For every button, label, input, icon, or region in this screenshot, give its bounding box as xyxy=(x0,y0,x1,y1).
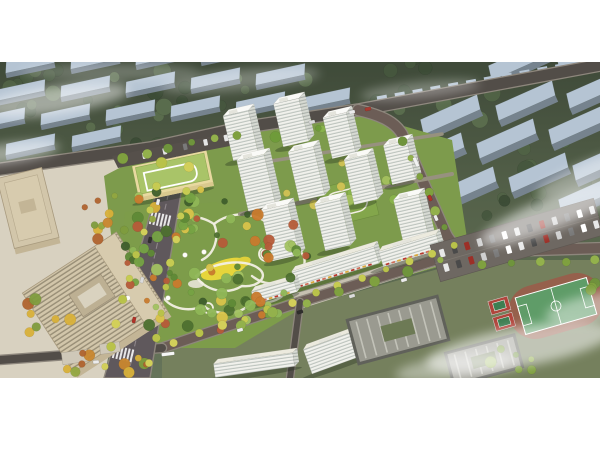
street-tree xyxy=(383,266,389,272)
street-tree xyxy=(267,307,278,318)
site-tree xyxy=(121,242,130,251)
street-tree xyxy=(146,206,153,213)
site-tree xyxy=(265,243,273,251)
site-tree xyxy=(82,204,88,210)
site-tree xyxy=(337,182,345,190)
street-tree xyxy=(288,299,296,307)
street-tree xyxy=(188,139,195,146)
street-tree xyxy=(111,319,120,328)
site-tree xyxy=(233,274,244,285)
site-tree xyxy=(293,249,301,257)
street-tree xyxy=(562,258,570,266)
street-tree xyxy=(117,153,128,164)
site-tree xyxy=(103,218,113,228)
site-tree xyxy=(163,278,170,285)
street-tree xyxy=(126,275,133,282)
site-tree xyxy=(52,315,60,323)
site-tree xyxy=(135,355,142,362)
site-tree xyxy=(27,310,35,318)
street-tree xyxy=(166,259,174,267)
site-tree xyxy=(207,308,216,317)
site-tree xyxy=(64,314,76,326)
top-white-margin xyxy=(0,0,600,62)
context-tree xyxy=(156,98,173,115)
site-tree xyxy=(91,221,98,228)
street-tree xyxy=(590,255,599,264)
site-tree xyxy=(586,285,597,296)
site-tree xyxy=(252,209,264,221)
street-tree xyxy=(441,224,447,230)
site-tree xyxy=(250,236,260,246)
site-tree xyxy=(29,293,41,305)
site-tree xyxy=(149,216,156,223)
park-canopy xyxy=(202,250,207,255)
site-tree xyxy=(134,195,143,204)
street-tree xyxy=(163,144,172,153)
bottom-white-margin xyxy=(0,378,600,450)
street-tree xyxy=(163,284,170,291)
street-tree xyxy=(102,363,109,370)
street-tree xyxy=(451,242,458,249)
fog-cloud xyxy=(20,64,200,80)
street-tree xyxy=(184,162,194,172)
site-tree xyxy=(171,274,178,281)
street-tree xyxy=(106,342,115,351)
street-tree xyxy=(183,187,191,195)
site-tree xyxy=(286,273,296,283)
site-tree xyxy=(139,244,149,254)
park-canopy xyxy=(183,253,188,258)
site-tree xyxy=(243,222,251,230)
site-tree xyxy=(280,290,287,297)
site-tree xyxy=(151,264,163,276)
site-tree xyxy=(95,198,101,204)
street-tree xyxy=(477,260,486,269)
site-tree xyxy=(206,264,214,272)
street-tree xyxy=(195,329,203,337)
park-canopy xyxy=(166,296,171,301)
site-tree xyxy=(302,252,309,259)
street-tree xyxy=(312,289,320,297)
site-tree xyxy=(255,297,265,307)
street-tree xyxy=(118,295,127,304)
street-tree xyxy=(158,310,165,317)
site-tree xyxy=(234,264,240,270)
street-tree xyxy=(233,131,242,140)
street-tree xyxy=(177,212,184,219)
site-tree xyxy=(92,234,103,245)
site-tree xyxy=(123,367,134,378)
street-tree xyxy=(536,257,545,266)
site-tree xyxy=(32,322,41,331)
site-tree xyxy=(188,289,194,295)
street-tree xyxy=(428,250,436,258)
site-tree xyxy=(228,299,236,307)
street-tree xyxy=(156,157,167,168)
site-tree xyxy=(527,365,536,374)
site-tree xyxy=(197,186,204,193)
site-tree xyxy=(189,268,201,280)
car xyxy=(93,360,99,364)
site-tree xyxy=(105,209,114,218)
site-tree xyxy=(270,131,281,142)
street-tree xyxy=(369,276,380,287)
site-tree xyxy=(153,304,159,310)
street-tree xyxy=(211,134,219,142)
rendering-page xyxy=(0,0,600,450)
site-tree xyxy=(70,367,80,377)
street-tree xyxy=(402,266,413,277)
street-tree xyxy=(172,236,180,244)
site-tree xyxy=(244,211,250,217)
street-tree xyxy=(141,229,148,236)
street-tree xyxy=(406,257,414,265)
site-tree xyxy=(182,320,194,332)
context-tree xyxy=(418,62,432,75)
site-tree xyxy=(234,309,243,318)
site-tree xyxy=(214,232,220,238)
street-tree xyxy=(142,149,152,159)
site-tree xyxy=(221,273,231,283)
street-tree xyxy=(437,257,443,263)
context-tree xyxy=(499,195,510,206)
street-tree xyxy=(145,359,153,367)
context-tree xyxy=(86,122,96,132)
street-tree xyxy=(170,339,178,347)
street-tree xyxy=(334,287,344,297)
street-tree xyxy=(359,275,366,282)
street-tree xyxy=(152,334,160,342)
site-tree xyxy=(63,365,71,373)
street-tree xyxy=(152,182,160,190)
site-tree xyxy=(78,361,85,368)
street-tree xyxy=(508,259,515,266)
site-tree xyxy=(216,288,228,300)
site-tree xyxy=(288,220,298,230)
street-tree xyxy=(218,320,227,329)
site-tree xyxy=(245,300,256,311)
site-tree xyxy=(221,198,227,204)
street-tree xyxy=(398,137,407,146)
rendering-frame xyxy=(0,62,600,378)
street-tree xyxy=(416,173,423,180)
site-tree xyxy=(194,215,200,221)
aerial-masterplan-rendering xyxy=(0,62,600,378)
site-tree xyxy=(218,238,228,248)
site-tree xyxy=(143,319,155,331)
context-tree xyxy=(383,63,397,77)
site-tree xyxy=(120,226,128,234)
site-tree xyxy=(195,304,206,315)
site-tree xyxy=(161,226,172,237)
site-tree xyxy=(79,350,86,357)
site-tree xyxy=(112,193,118,199)
street-tree xyxy=(303,299,311,307)
context-tree xyxy=(482,210,492,220)
scene-root xyxy=(0,62,600,378)
site-tree xyxy=(144,298,150,304)
site-tree xyxy=(283,190,290,197)
site-tree xyxy=(226,214,236,224)
site-tree xyxy=(125,260,131,266)
site-tree xyxy=(315,125,321,131)
site-tree xyxy=(263,253,273,263)
street-tree xyxy=(430,206,440,216)
street-tree xyxy=(132,251,140,259)
